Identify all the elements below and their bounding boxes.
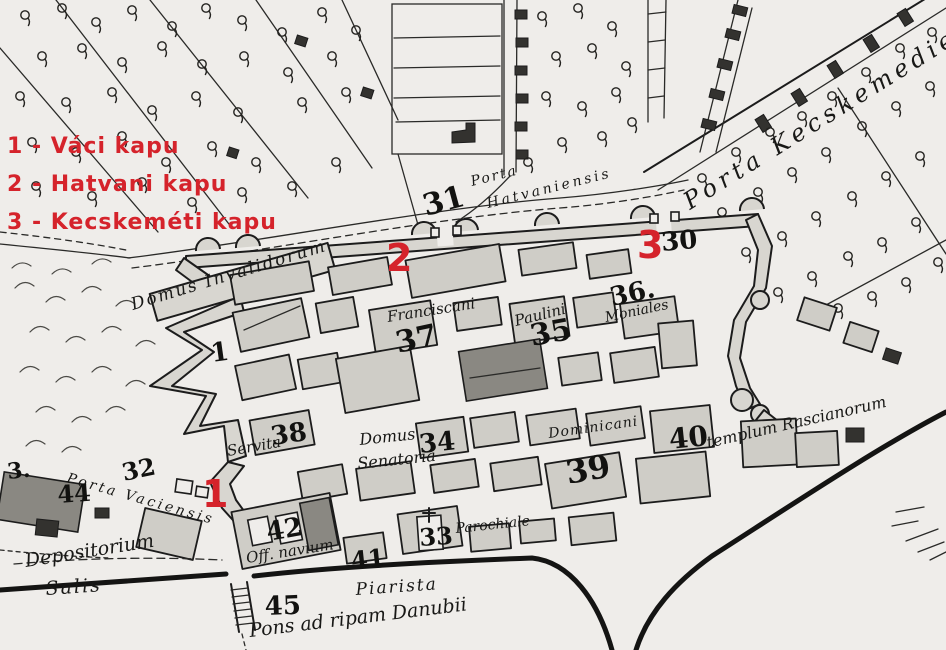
map-svg: Porta Hatvaniensis Porta Kecskemedien Po…: [0, 0, 946, 650]
number-39: 39: [563, 447, 613, 492]
gate-1-house: [175, 479, 193, 494]
number-35: 35: [527, 312, 574, 354]
number-30: 30: [660, 225, 699, 258]
label-salis: Salis: [45, 574, 103, 600]
number-33: 33: [418, 521, 453, 552]
legend-item-3: 3 - Kecskeméti kapu: [7, 210, 277, 235]
number-42: 42: [264, 512, 305, 548]
legend-item-2: 2 - Hatvani kapu: [7, 172, 227, 197]
gate-marker-3: 3: [637, 223, 663, 267]
number-41: 41: [350, 543, 386, 575]
gate-marker-1: 1: [202, 472, 228, 516]
number-38: 38: [269, 417, 309, 452]
number-44: 44: [56, 478, 91, 509]
gate-marker-2: 2: [386, 236, 412, 280]
historical-map-canvas: Porta Hatvaniensis Porta Kecskemedien Po…: [0, 0, 946, 650]
number-34: 34: [418, 426, 457, 460]
number-40: 40: [667, 419, 709, 456]
legend-item-1: 1 - Váci kapu: [7, 134, 180, 159]
number-45: 45: [264, 591, 301, 622]
number-3-edge: 3.: [6, 457, 32, 485]
